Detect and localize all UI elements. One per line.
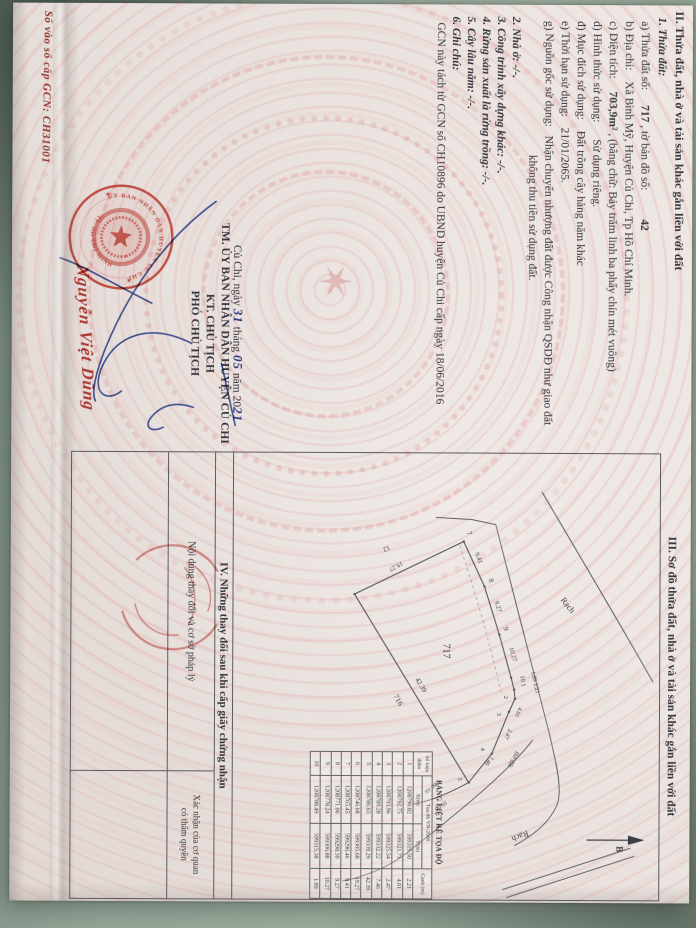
diagram-label: 10 1 — [518, 675, 527, 687]
use-form-line: d) Hình thức sử dụng: Sử dụng riêng. — [590, 21, 603, 207]
note-line: GCN này tách từ GCN số CH10896 do UBND h… — [433, 22, 447, 404]
paper-sheet: ✶ II. Thửa đất, nhà ở và tài sản khác gắ… — [9, 3, 693, 904]
origin-value: Nhận chuyển nhượng đất được Công nhận QS… — [541, 136, 554, 426]
table-row: 71208765.45599296.469.41 — [341, 751, 352, 898]
coordinate-table: Số hiệu điểm Tọa độ VN-2000 Cạnh (m) X(m… — [309, 751, 433, 900]
address-value: Xã Bình Mỹ, Huyện Củ Chi, Tp Hồ Chí Minh… — [622, 81, 635, 296]
diagram-label: 2.47 — [502, 728, 512, 740]
table-row: 51208786.63599339.2942.39 — [361, 752, 372, 899]
diagram-label: Rạch — [510, 829, 531, 845]
use-form-label: d) Hình thức sử dụng: — [591, 21, 603, 122]
diagram-label: 7.46 — [483, 754, 494, 766]
photo-background: ✶ II. Thửa đất, nhà ở và tài sản khác gắ… — [0, 0, 696, 928]
diagram-label: 1.89 2.21 — [529, 671, 540, 694]
section2-item5: 5. Cây lâu năm: -/-. — [465, 17, 477, 110]
diagram-label: 10.27 — [507, 646, 518, 663]
diagram-label: 5 — [456, 777, 463, 780]
table-row: 21208792.75599321.714.01 — [392, 752, 403, 899]
section2-item2: 2. Nhà ở: -/-. — [510, 17, 522, 78]
section2-item4: 4. Rừng sản xuất là rừng trồng: -/-. — [479, 17, 492, 186]
section2-heading: II. Thửa đất, nhà ở và tài sản khác gắn … — [671, 11, 687, 270]
cadastral-map-box: 79.4189.27910.271.89 2.2110 124.0132.474… — [69, 451, 661, 902]
table-row: 61208746.68599305.6819.27 — [351, 752, 362, 899]
section3-heading: III. Sơ đồ thửa đất, nhà ở và tài sản kh… — [664, 453, 678, 899]
vertex-points — [352, 540, 516, 784]
use-purpose-label: đ) Mục đích sử dụng: — [575, 21, 587, 120]
diagram-label: 7 — [465, 530, 474, 537]
diagram-label: 42.39 — [413, 676, 428, 694]
canal-outer-line — [541, 492, 654, 682]
diagram-label: 4 — [479, 748, 486, 752]
col-point-header: Số hiệu điểm — [413, 752, 432, 776]
page-fold-crease — [49, 3, 79, 901]
diagram-label: 12 — [381, 543, 391, 554]
diagram-label: 9 — [501, 626, 510, 632]
document-page: ✶ II. Thửa đất, nhà ở và tài sản khác gắ… — [0, 0, 696, 928]
diagram-label: 716 — [391, 693, 405, 708]
address-label: b) Địa chỉ: — [623, 21, 635, 70]
diagram-label: 9.41 — [473, 552, 484, 565]
inner-dashed-line — [459, 546, 502, 692]
page-edge-shadow — [9, 883, 689, 904]
diagram-label: 9.27 — [493, 600, 503, 614]
col-x-header: X(m) — [413, 776, 423, 824]
page-edge-shadow — [9, 3, 29, 901]
changes-authority-line1: Xác nhận của cơ quan — [190, 794, 202, 874]
area-in-words: , (bằng chữ: Bảy trăm linh ba phẩy chín … — [605, 133, 618, 371]
diagram-label: Bờ đất — [506, 750, 520, 769]
section2-item6: 6. Ghi chú: — [450, 16, 462, 70]
drum-pattern-star-icon: ✶ — [308, 262, 362, 301]
diagram-label: 8 — [487, 578, 496, 584]
origin-label: g) Nguồn gốc sử dụng: — [543, 21, 555, 127]
diagram-label: 2 — [502, 696, 509, 699]
use-purpose-line: đ) Mục đích sử dụng: Đất trồng cây hàng … — [574, 21, 587, 266]
table-row: 91208778.24599306.8810.27 — [320, 751, 331, 898]
address-line: b) Địa chỉ: Xã Bình Mỹ, Huyện Củ Chi, Tp… — [622, 21, 635, 296]
use-term-value: 21/01/2065. — [558, 128, 570, 183]
use-purpose-value: Đất trồng cây hàng năm khác — [574, 131, 587, 266]
section2-item1: 1. Thửa đất: — [656, 17, 668, 76]
diagram-label: 717 — [440, 643, 451, 658]
table-row: 41208789.28599332.227.46 — [371, 752, 382, 899]
parcel-boundary — [354, 541, 516, 783]
canal-far-bank — [434, 517, 560, 846]
parcel-number-label: a) Thửa đất số: — [639, 21, 651, 90]
diagram-label: 19.27 — [387, 559, 404, 572]
col-y-header: Y(m) — [413, 823, 423, 869]
changes-authority-line2: có thẩm quyền — [178, 808, 190, 861]
coord-table-body: 11208790.82599319.502.2121208792.7559932… — [310, 751, 414, 898]
partial-red-stamp — [114, 507, 235, 688]
section2-item3: 3. Công trình xây dựng khác: -/-. — [494, 17, 507, 174]
diagram-label: 4.01 — [513, 706, 523, 718]
diagram-label: Rạch — [559, 595, 578, 616]
table-row: 31208793.96599325.542.47 — [382, 752, 393, 899]
map-sheet-label: , tờ bản đồ số: — [638, 125, 650, 190]
parcel-number-line: a) Thửa đất số: 717 , tờ bản đồ số: 42 — [638, 21, 651, 231]
col-group-header: Tọa độ VN-2000 — [422, 776, 432, 869]
diagram-label: 3 — [495, 713, 502, 716]
map-sheet-value: 42 — [638, 219, 650, 231]
north-arrow-icon — [586, 836, 642, 844]
use-term-label: e) Thời hạn sử dụng: — [559, 21, 571, 117]
parcel-diagram: 79.4189.27910.271.89 2.2110 124.0132.474… — [234, 453, 660, 901]
origin-line: g) Nguồn gốc sử dụng: Nhận chuyển nhượng… — [541, 21, 555, 425]
parcel-number-value: 717 — [639, 105, 651, 122]
changes-authority-header: Xác nhận của cơ quan có thẩm quyền — [167, 770, 214, 898]
use-form-value: Sử dụng riêng. — [590, 139, 602, 207]
diagram-label: B — [614, 846, 624, 852]
area-label: c) Diện tích: — [607, 21, 619, 79]
area-value: 703,9m² — [607, 92, 619, 131]
coord-table-title: BẢNG LIỆT KÊ TỌA ĐỘ — [434, 751, 443, 893]
origin-line-2: không thu tiền sử dụng đất. — [526, 155, 539, 281]
table-row: 81208771.06599298.309.27 — [330, 751, 341, 898]
use-term-line: e) Thời hạn sử dụng: 21/01/2065. — [558, 21, 571, 183]
table-row: 101208788.49599315.381.89 — [310, 751, 321, 898]
area-line: c) Diện tích: 703,9m² , (bằng chữ: Bảy t… — [605, 21, 619, 372]
changes-table: Nội dung thay đổi và cơ sở pháp lý Xác n… — [70, 452, 216, 899]
table-row: 11208790.82599319.502.21 — [402, 752, 413, 899]
